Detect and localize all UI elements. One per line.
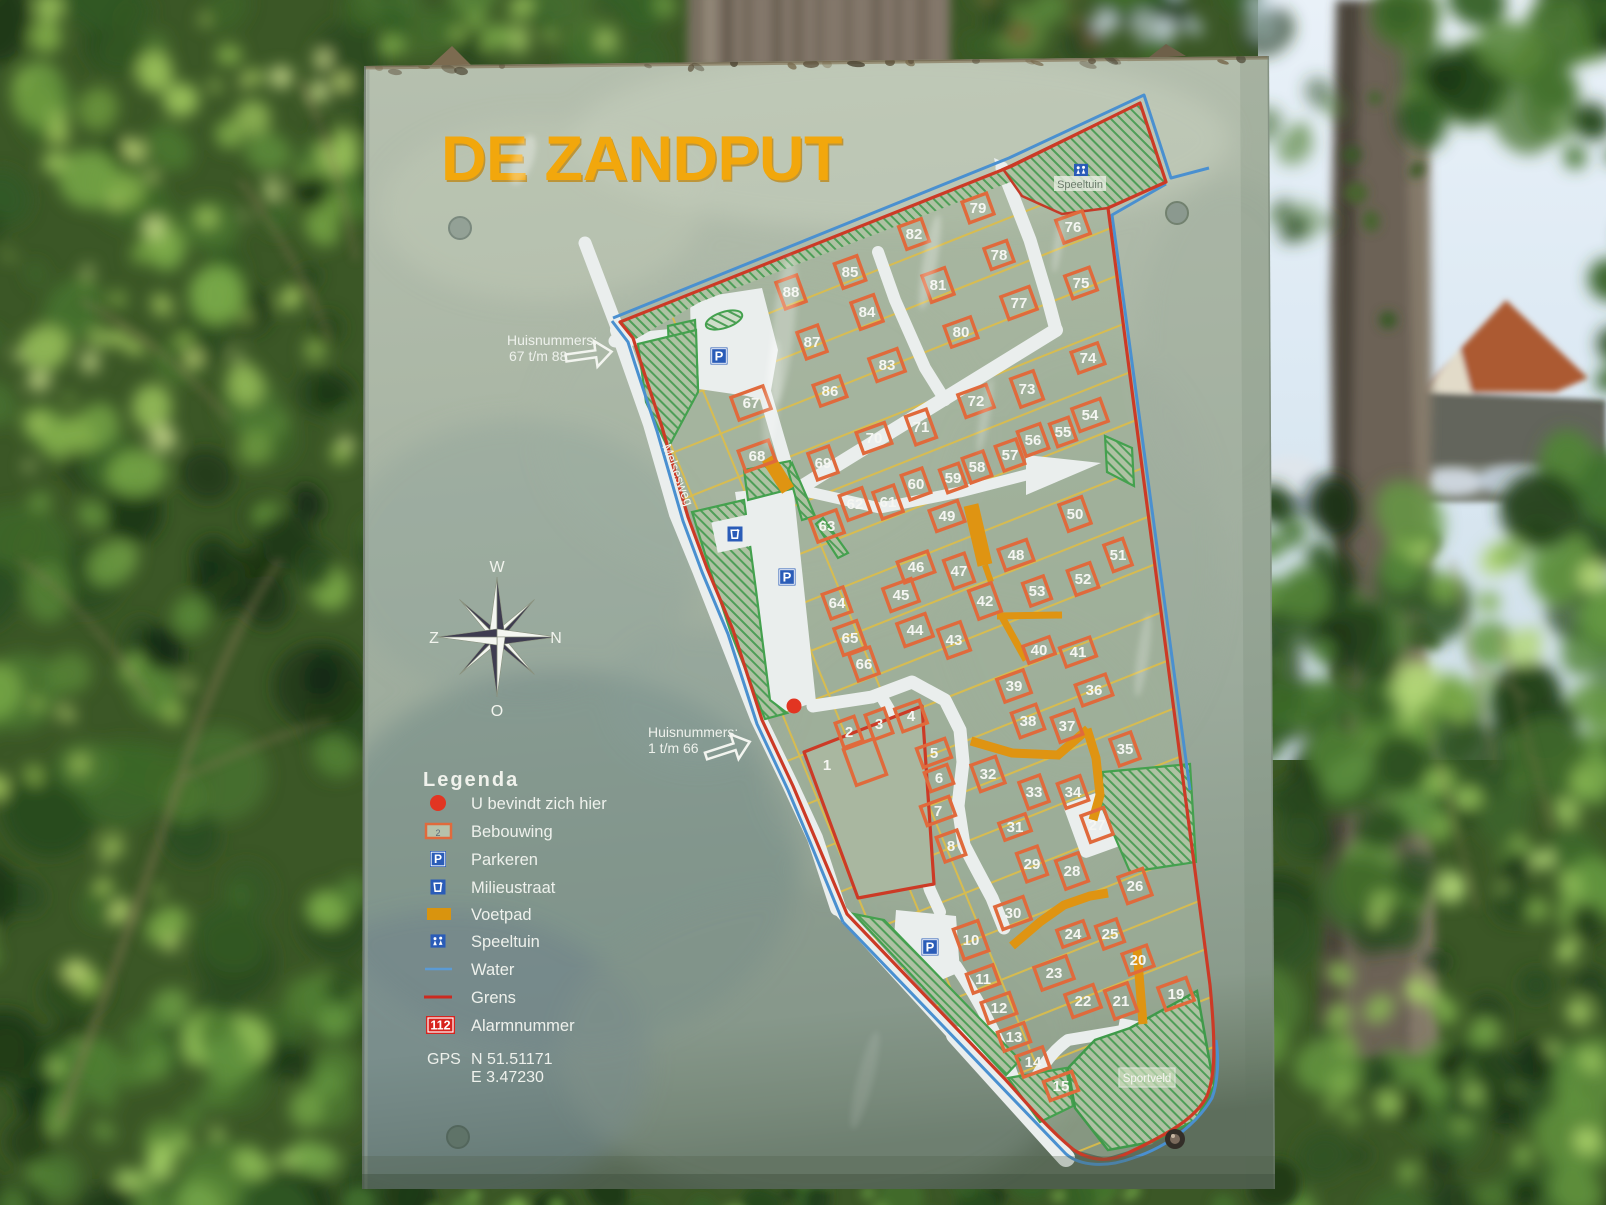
svg-text:52: 52 bbox=[1075, 571, 1092, 588]
svg-text:32: 32 bbox=[980, 766, 997, 783]
svg-text:80: 80 bbox=[953, 324, 970, 341]
svg-text:Voetpad: Voetpad bbox=[471, 906, 532, 924]
svg-text:30: 30 bbox=[1005, 905, 1022, 922]
svg-text:25: 25 bbox=[1102, 926, 1119, 943]
svg-text:DE ZANDPUT: DE ZANDPUT bbox=[441, 124, 842, 194]
svg-text:15: 15 bbox=[1053, 1078, 1070, 1095]
svg-text:74: 74 bbox=[1080, 350, 1097, 367]
svg-text:70: 70 bbox=[866, 430, 883, 447]
svg-text:4: 4 bbox=[907, 708, 916, 725]
svg-text:Legenda: Legenda bbox=[423, 769, 519, 791]
svg-text:59: 59 bbox=[945, 470, 962, 487]
svg-text:Z: Z bbox=[429, 630, 439, 647]
svg-text:Speeltuin: Speeltuin bbox=[1057, 179, 1103, 191]
svg-text:61: 61 bbox=[880, 494, 897, 511]
svg-text:27: 27 bbox=[1089, 817, 1106, 834]
svg-text:Speeltuin: Speeltuin bbox=[471, 933, 540, 951]
svg-text:46: 46 bbox=[908, 559, 925, 576]
svg-text:20: 20 bbox=[1130, 952, 1147, 969]
svg-text:63: 63 bbox=[819, 518, 836, 535]
svg-text:6: 6 bbox=[935, 770, 943, 787]
svg-text:76: 76 bbox=[1065, 219, 1082, 236]
svg-text:19: 19 bbox=[1168, 986, 1185, 1003]
svg-text:O: O bbox=[491, 703, 503, 720]
svg-text:49: 49 bbox=[939, 508, 956, 525]
svg-text:P: P bbox=[715, 349, 724, 364]
svg-text:62: 62 bbox=[847, 496, 864, 513]
svg-text:22: 22 bbox=[1075, 993, 1092, 1010]
svg-text:5: 5 bbox=[930, 745, 938, 762]
svg-text:N 51.51171: N 51.51171 bbox=[471, 1051, 553, 1068]
svg-text:2: 2 bbox=[845, 724, 853, 741]
svg-text:W: W bbox=[489, 559, 505, 576]
svg-text:85: 85 bbox=[842, 264, 859, 281]
svg-text:78: 78 bbox=[991, 247, 1008, 264]
svg-text:37: 37 bbox=[1059, 718, 1076, 735]
svg-text:55: 55 bbox=[1055, 424, 1072, 441]
svg-text:45: 45 bbox=[893, 587, 910, 604]
svg-text:Sportveld: Sportveld bbox=[1123, 1073, 1172, 1085]
svg-text:56: 56 bbox=[1025, 432, 1042, 449]
svg-text:E 3.47230: E 3.47230 bbox=[471, 1069, 544, 1086]
svg-text:24: 24 bbox=[1065, 926, 1082, 943]
svg-text:Huisnummers:: Huisnummers: bbox=[507, 332, 597, 348]
svg-text:Huisnummers:: Huisnummers: bbox=[648, 724, 738, 740]
svg-text:79: 79 bbox=[970, 200, 987, 217]
svg-text:42: 42 bbox=[977, 593, 994, 610]
svg-text:68: 68 bbox=[749, 448, 766, 465]
svg-text:64: 64 bbox=[829, 595, 846, 612]
svg-text:82: 82 bbox=[906, 226, 923, 243]
svg-text:1 t/m 66: 1 t/m 66 bbox=[648, 740, 699, 756]
svg-text:U bevindt zich hier: U bevindt zich hier bbox=[471, 795, 607, 813]
svg-text:31: 31 bbox=[1007, 819, 1024, 836]
svg-text:38: 38 bbox=[1020, 713, 1037, 730]
svg-text:35: 35 bbox=[1117, 741, 1134, 758]
svg-text:60: 60 bbox=[908, 476, 925, 493]
svg-text:44: 44 bbox=[907, 622, 924, 639]
svg-text:51: 51 bbox=[1110, 547, 1127, 564]
svg-text:3: 3 bbox=[875, 716, 883, 733]
svg-text:12: 12 bbox=[991, 1000, 1008, 1017]
svg-text:84: 84 bbox=[859, 304, 876, 321]
svg-text:Grens: Grens bbox=[471, 989, 516, 1007]
svg-text:73: 73 bbox=[1019, 381, 1036, 398]
svg-text:54: 54 bbox=[1082, 407, 1099, 424]
svg-text:26: 26 bbox=[1127, 878, 1144, 895]
svg-text:41: 41 bbox=[1070, 644, 1087, 661]
svg-text:Parkeren: Parkeren bbox=[471, 851, 538, 869]
svg-text:2: 2 bbox=[435, 828, 440, 838]
svg-text:11: 11 bbox=[975, 971, 991, 988]
svg-text:69: 69 bbox=[815, 455, 832, 472]
svg-text:36: 36 bbox=[1086, 682, 1103, 699]
svg-text:50: 50 bbox=[1067, 506, 1084, 523]
svg-text:66: 66 bbox=[856, 656, 873, 673]
svg-text:Milieustraat: Milieustraat bbox=[471, 879, 556, 897]
svg-text:P: P bbox=[434, 852, 442, 866]
svg-text:53: 53 bbox=[1029, 583, 1046, 600]
svg-text:112: 112 bbox=[430, 1019, 450, 1033]
svg-text:58: 58 bbox=[969, 459, 986, 476]
svg-text:71: 71 bbox=[913, 419, 930, 436]
svg-text:33: 33 bbox=[1026, 784, 1043, 801]
svg-text:7: 7 bbox=[934, 803, 942, 820]
svg-text:67 t/m 88: 67 t/m 88 bbox=[509, 348, 568, 364]
svg-text:48: 48 bbox=[1008, 547, 1025, 564]
svg-text:65: 65 bbox=[842, 630, 859, 647]
svg-text:Water: Water bbox=[471, 961, 515, 979]
svg-text:29: 29 bbox=[1024, 856, 1041, 873]
svg-text:83: 83 bbox=[879, 357, 896, 374]
svg-text:P: P bbox=[926, 940, 935, 955]
svg-text:86: 86 bbox=[822, 383, 839, 400]
svg-text:Bebouwing: Bebouwing bbox=[471, 823, 553, 841]
svg-text:13: 13 bbox=[1006, 1029, 1023, 1046]
svg-text:34: 34 bbox=[1065, 784, 1082, 801]
svg-text:40: 40 bbox=[1031, 642, 1048, 659]
svg-text:47: 47 bbox=[951, 563, 968, 580]
svg-text:75: 75 bbox=[1073, 275, 1090, 292]
svg-text:28: 28 bbox=[1064, 863, 1081, 880]
svg-text:57: 57 bbox=[1002, 447, 1019, 464]
svg-text:N: N bbox=[550, 630, 562, 647]
svg-text:10: 10 bbox=[963, 932, 980, 949]
svg-text:14: 14 bbox=[1025, 1054, 1042, 1071]
svg-text:43: 43 bbox=[946, 632, 963, 649]
svg-text:8: 8 bbox=[947, 838, 955, 855]
svg-text:21: 21 bbox=[1113, 993, 1130, 1010]
svg-text:23: 23 bbox=[1046, 965, 1063, 982]
svg-text:77: 77 bbox=[1011, 295, 1028, 312]
svg-text:P: P bbox=[783, 570, 792, 585]
svg-text:1: 1 bbox=[823, 757, 831, 774]
svg-text:GPS: GPS bbox=[427, 1051, 461, 1068]
svg-text:87: 87 bbox=[804, 334, 821, 351]
svg-text:67: 67 bbox=[743, 395, 760, 412]
svg-text:39: 39 bbox=[1006, 678, 1023, 695]
svg-text:Alarmnummer: Alarmnummer bbox=[471, 1017, 575, 1035]
